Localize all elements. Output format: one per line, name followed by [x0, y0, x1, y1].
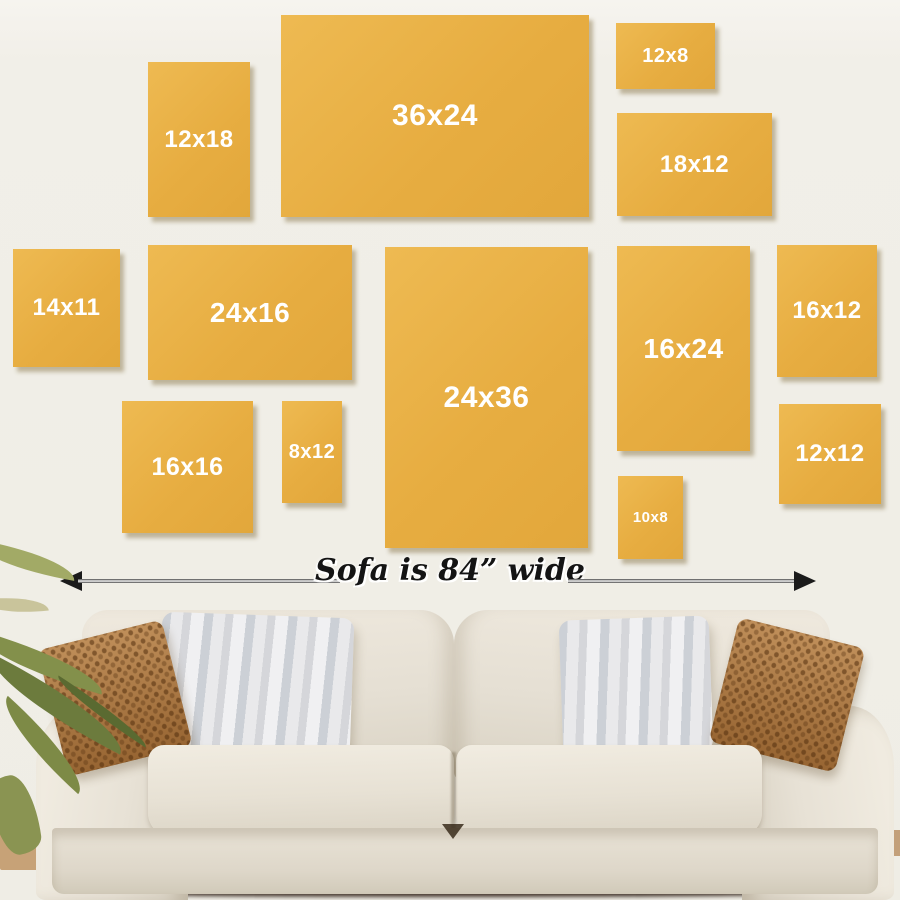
art-frame-size-label: 12x8 [642, 46, 689, 66]
art-frame-24x16: 24x16 [148, 245, 352, 380]
art-frame-size-label: 12x18 [164, 128, 233, 152]
art-frame-size-label: 14x11 [33, 296, 101, 320]
art-frame-size-label: 8x12 [289, 442, 336, 462]
art-frame-14x11: 14x11 [13, 249, 120, 367]
sofa-width-label: Sofa is 84” wide [290, 553, 610, 588]
art-frame-16x24: 16x24 [617, 246, 750, 451]
sofa-base-crease [442, 824, 464, 839]
art-frame-size-label: 24x16 [210, 299, 290, 327]
art-frame-size-label: 12x12 [795, 442, 864, 466]
art-frame-12x18: 12x18 [148, 62, 250, 217]
art-frame-24x36: 24x36 [385, 247, 588, 548]
art-frame-18x12: 18x12 [617, 113, 772, 216]
arrow-right-head-icon [794, 571, 816, 591]
art-frame-16x12: 16x12 [777, 245, 877, 377]
art-frame-16x16: 16x16 [122, 401, 253, 533]
art-frame-12x8: 12x8 [616, 23, 715, 89]
pillow-gray-right [559, 615, 714, 756]
art-frame-size-label: 16x24 [643, 335, 723, 363]
art-frame-size-label: 10x8 [633, 510, 668, 525]
art-frame-12x12: 12x12 [779, 404, 881, 504]
wall-art-size-guide: 12x1836x2412x818x1214x1124x1624x3616x241… [0, 0, 900, 900]
art-frame-36x24: 36x24 [281, 15, 589, 217]
art-frame-size-label: 16x16 [151, 455, 223, 480]
art-frame-size-label: 18x12 [660, 153, 729, 177]
art-frame-10x8: 10x8 [618, 476, 683, 559]
art-frame-8x12: 8x12 [282, 401, 342, 503]
sofa-base [52, 828, 878, 894]
arrow-line-right [568, 579, 796, 583]
art-frame-size-label: 24x36 [444, 383, 530, 413]
sofa-seat-right-cushion [456, 745, 762, 837]
sofa [36, 600, 894, 900]
art-frame-size-label: 16x12 [792, 299, 861, 323]
plant-leaf [0, 539, 78, 581]
sofa-seat-left-cushion [148, 745, 454, 837]
art-frame-size-label: 36x24 [392, 101, 478, 131]
